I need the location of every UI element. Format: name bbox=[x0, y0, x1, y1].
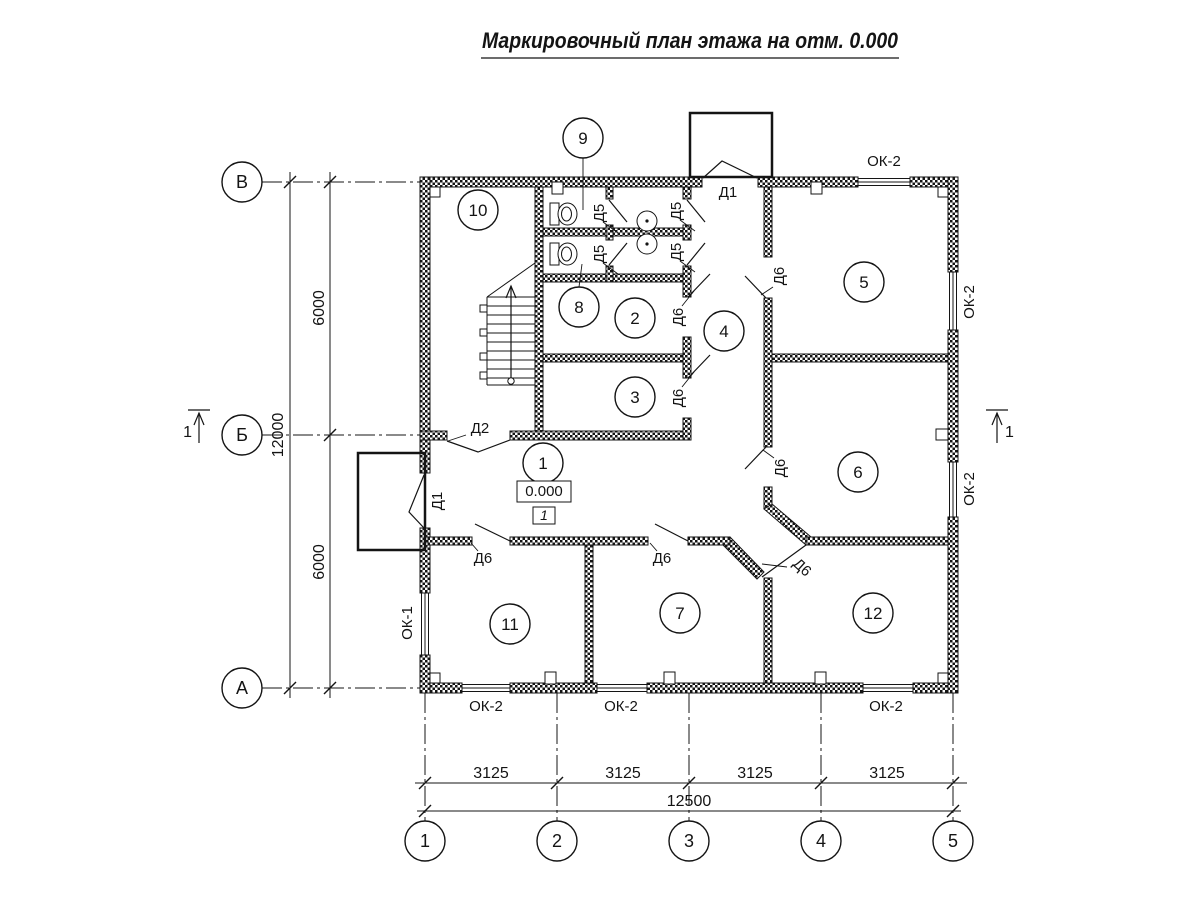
door-leaf-d1-left bbox=[409, 475, 424, 528]
section-label-right: 1 bbox=[1005, 424, 1014, 441]
wall-segment bbox=[510, 431, 691, 440]
entrance-porch-left bbox=[358, 453, 425, 550]
corner-mark bbox=[938, 187, 948, 197]
room-labels: 1 2 3 4 5 6 7 8 9 10 11 12 bbox=[458, 118, 893, 644]
wall-segment bbox=[420, 177, 430, 473]
wall-segment bbox=[764, 298, 772, 447]
door-label-d6-room2: Д6 bbox=[670, 308, 687, 327]
stair bbox=[480, 263, 535, 385]
door-label-d5-1: Д5 bbox=[591, 204, 608, 223]
door-label-d5-3: Д5 bbox=[591, 245, 608, 264]
door-label-d5-2: Д5 bbox=[668, 202, 685, 221]
room-number-8: 8 bbox=[574, 298, 583, 317]
axis-label-row-b: Б bbox=[236, 425, 248, 445]
door-label-d6-room6: Д6 bbox=[772, 459, 789, 478]
axis-label-col-4: 4 bbox=[816, 831, 826, 851]
door-leaf-d1-top bbox=[703, 161, 757, 178]
door-leaf-d5 bbox=[687, 243, 705, 265]
corner-mark bbox=[938, 673, 948, 683]
axis-label-col-2: 2 bbox=[552, 831, 562, 851]
door-leaf-d6-room5 bbox=[745, 276, 766, 298]
room-number-4: 4 bbox=[719, 322, 728, 341]
room-number-5: 5 bbox=[859, 273, 868, 292]
wall-segment bbox=[543, 354, 691, 362]
window-label-ok1-left: ОК-1 bbox=[399, 606, 416, 640]
window-label-ok2-right-room6: ОК-2 bbox=[961, 472, 978, 506]
title-block: Маркировочный план этажа на отм. 0.000 bbox=[481, 28, 899, 58]
window-ok2-bottom-2 bbox=[597, 685, 647, 692]
room-number-11: 11 bbox=[501, 615, 519, 634]
window-ok2-bottom-1 bbox=[462, 685, 510, 692]
door-label-d6-room3: Д6 bbox=[670, 389, 687, 408]
floor-plan-svg: Маркировочный план этажа на отм. 0.000 bbox=[0, 0, 1200, 900]
window-ok2-bottom-3 bbox=[863, 685, 913, 692]
dim-bottom-3125-2: 3125 bbox=[605, 765, 641, 782]
wall-segment bbox=[510, 537, 648, 545]
wall-segment bbox=[948, 517, 958, 693]
sink-icon-2 bbox=[637, 234, 657, 254]
axis-label-row-a: А bbox=[236, 678, 248, 698]
door-leaf-d5 bbox=[609, 243, 627, 265]
door-leaf-d2 bbox=[447, 440, 510, 452]
page-title: Маркировочный план этажа на отм. 0.000 bbox=[482, 28, 899, 53]
wall-segment bbox=[428, 537, 472, 545]
wall-segment bbox=[764, 578, 772, 683]
vent-mark bbox=[936, 429, 948, 440]
dim-left-6000-lower: 6000 bbox=[311, 544, 328, 580]
window-ok2-right-room5 bbox=[950, 272, 957, 330]
wall-segment bbox=[647, 683, 863, 693]
window-ok2-right-room6 bbox=[950, 462, 957, 517]
sink-icon-1 bbox=[637, 211, 657, 231]
axis-label-col-1: 1 bbox=[420, 831, 430, 851]
wall-segment bbox=[585, 545, 593, 683]
floor-plan-drawing: Маркировочный план этажа на отм. 0.000 bbox=[0, 0, 1200, 900]
room-number-10: 10 bbox=[469, 201, 488, 220]
entrance-porch-top bbox=[690, 113, 772, 177]
wall-segment bbox=[683, 418, 691, 440]
wall-segment bbox=[543, 274, 691, 282]
window-label-ok2-bottom-2: ОК-2 bbox=[604, 698, 638, 715]
window-label-ok2-right-room5: ОК-2 bbox=[961, 285, 978, 319]
elevation-mark: 0.000 1 bbox=[517, 481, 571, 524]
vent-mark bbox=[815, 672, 826, 684]
vent-mark bbox=[664, 672, 675, 684]
wall-segment bbox=[683, 187, 691, 199]
wall-segment bbox=[683, 337, 691, 378]
window-ok1-left bbox=[422, 593, 429, 655]
room-number-2: 2 bbox=[630, 309, 639, 328]
dim-bottom-3125-4: 3125 bbox=[869, 765, 905, 782]
room-number-6: 6 bbox=[853, 463, 862, 482]
door-label-d1-left: Д1 bbox=[429, 492, 446, 511]
room-number-9: 9 bbox=[578, 129, 587, 148]
window-label-ok2-bottom-3: ОК-2 bbox=[869, 698, 903, 715]
dim-bottom-3125-3: 3125 bbox=[737, 765, 773, 782]
room-number-12: 12 bbox=[864, 604, 883, 623]
window-label-ok2-top: ОК-2 bbox=[867, 153, 901, 170]
corner-mark bbox=[430, 187, 440, 197]
wall-segment bbox=[806, 537, 948, 545]
room-number-7: 7 bbox=[675, 604, 684, 623]
section-mark-right: 1 bbox=[986, 410, 1014, 443]
window-label-ok2-bottom-1: ОК-2 bbox=[469, 698, 503, 715]
room-number-3: 3 bbox=[630, 388, 639, 407]
wall-segment bbox=[948, 330, 958, 462]
dim-left-6000-upper: 6000 bbox=[311, 290, 328, 326]
door-label-d6-room12: Д6 bbox=[789, 555, 814, 580]
vent-mark bbox=[545, 672, 556, 684]
toilet-icon-1 bbox=[550, 203, 577, 225]
wall-segment bbox=[606, 266, 613, 282]
section-label-left: 1 bbox=[183, 424, 192, 441]
room-number-1: 1 bbox=[538, 454, 547, 473]
axis-label-col-3: 3 bbox=[684, 831, 694, 851]
vent-mark bbox=[552, 182, 563, 194]
door-label-d6-room7: Д6 bbox=[653, 550, 672, 567]
diagonal-wall bbox=[764, 504, 811, 545]
vent-mark bbox=[811, 182, 822, 194]
toilet-icon-2 bbox=[550, 243, 577, 265]
elevation-value: 0.000 bbox=[525, 483, 563, 500]
wall-segment bbox=[772, 354, 948, 362]
door-label-d2: Д2 bbox=[471, 420, 490, 437]
dim-bottom-3125-1: 3125 bbox=[473, 765, 509, 782]
wall-segment bbox=[606, 187, 613, 199]
section-mark-left: 1 bbox=[183, 410, 210, 443]
window-ok2-top bbox=[858, 179, 910, 186]
door-label-d6-room11: Д6 bbox=[474, 550, 493, 567]
door-leaf-d6-room11 bbox=[475, 524, 510, 541]
wall-segment bbox=[420, 655, 430, 693]
axis-label-col-5: 5 bbox=[948, 831, 958, 851]
dim-bottom-12500: 12500 bbox=[667, 793, 712, 810]
floor-type-mark: 1 bbox=[540, 507, 548, 523]
door-leaf-d5 bbox=[687, 200, 705, 222]
dim-left-12000: 12000 bbox=[270, 413, 287, 458]
axis-label-row-v: В bbox=[236, 172, 248, 192]
door-label-d6-room5: Д6 bbox=[771, 267, 788, 286]
door-leaf-d6-room7 bbox=[655, 524, 688, 541]
door-label-d1-top: Д1 bbox=[719, 184, 738, 201]
door-label-d5-4: Д5 bbox=[668, 243, 685, 262]
wall-segment bbox=[758, 177, 858, 187]
wall-segment bbox=[764, 187, 772, 257]
corner-mark bbox=[430, 673, 440, 683]
wall-segment bbox=[420, 431, 447, 440]
wall-segment bbox=[683, 266, 691, 297]
wall-segment bbox=[688, 537, 730, 545]
wall-segment bbox=[948, 177, 958, 272]
door-leaf-d5 bbox=[609, 200, 627, 222]
wall-segment bbox=[535, 187, 543, 440]
